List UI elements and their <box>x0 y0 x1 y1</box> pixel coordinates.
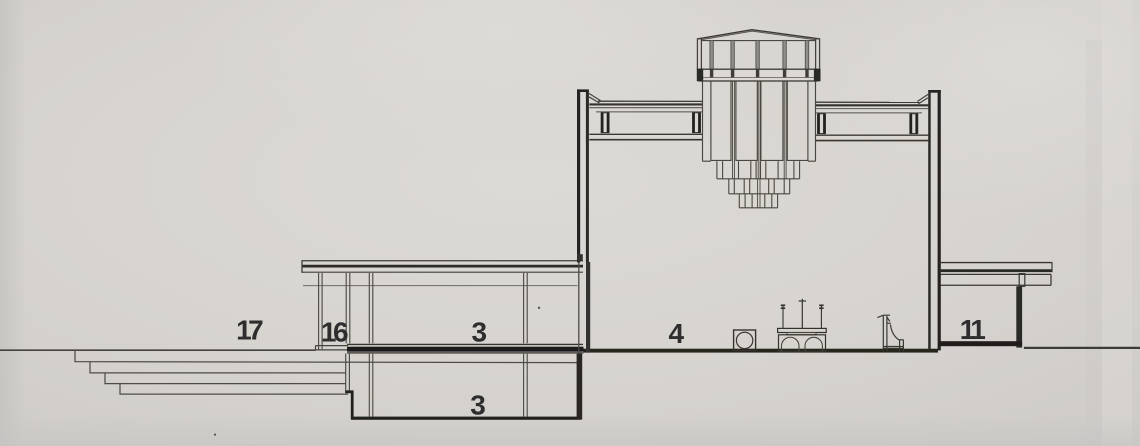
svg-text:4: 4 <box>669 318 685 349</box>
svg-text:16: 16 <box>321 316 348 347</box>
svg-text:11: 11 <box>960 314 986 345</box>
svg-text:3: 3 <box>470 389 486 420</box>
svg-text:17: 17 <box>236 314 263 345</box>
svg-text:3: 3 <box>472 317 488 348</box>
